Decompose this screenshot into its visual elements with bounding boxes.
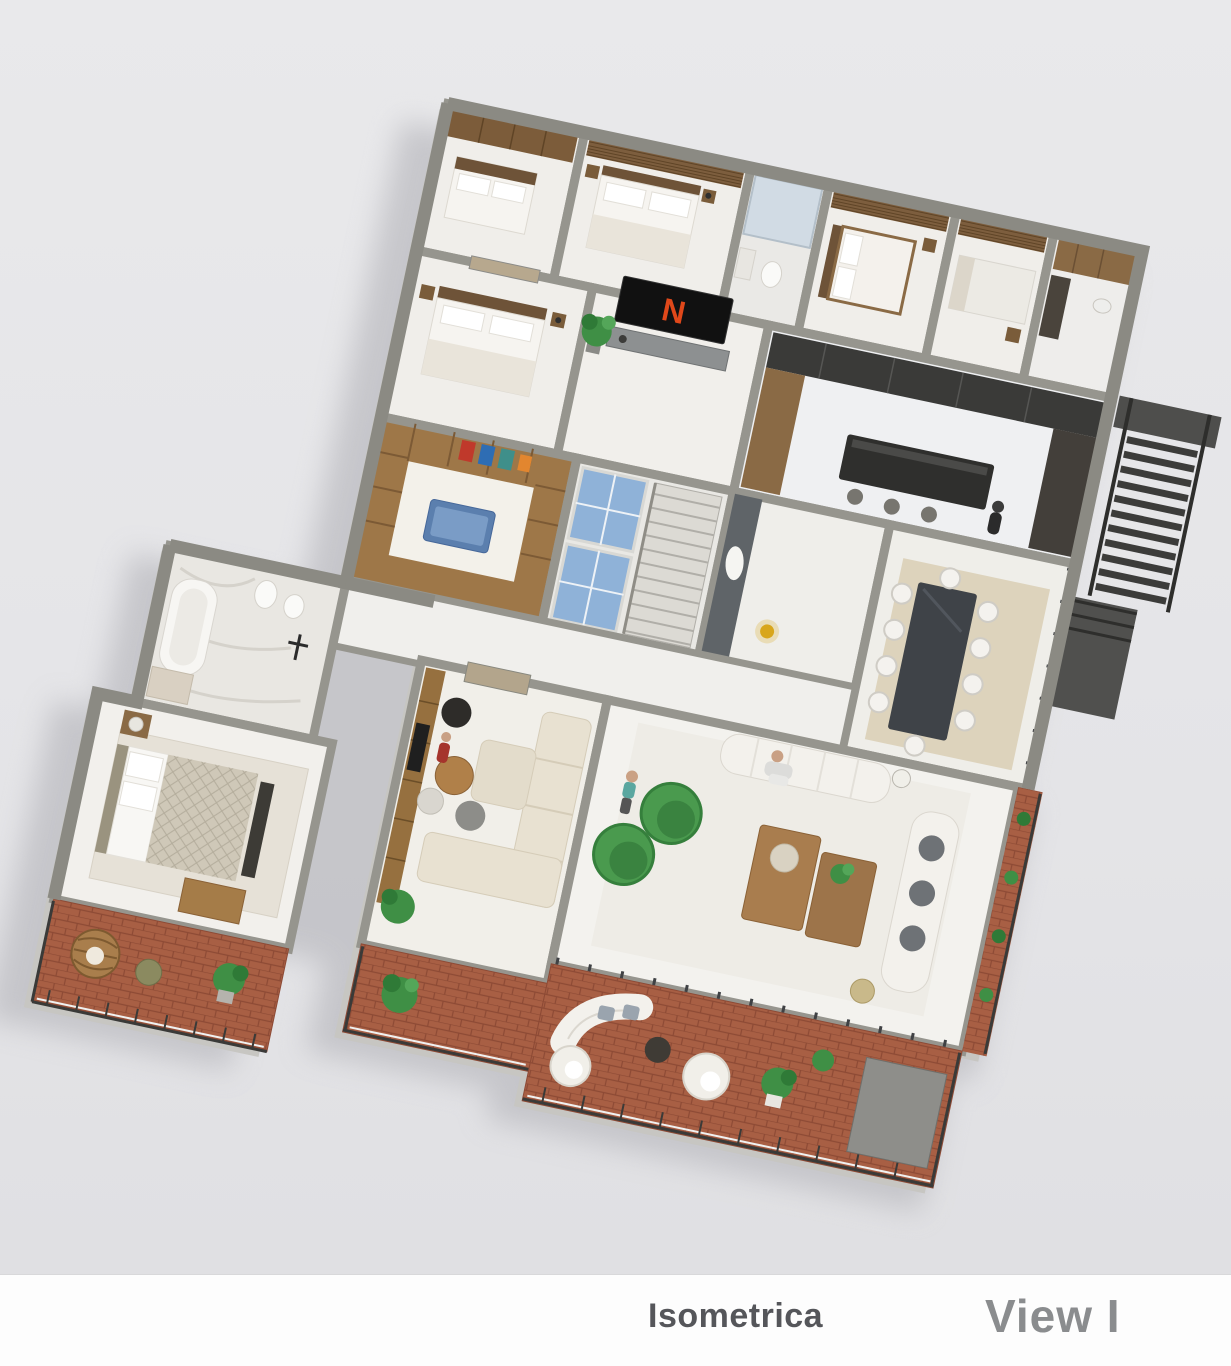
chaise (470, 739, 538, 811)
view-label: View I (985, 1289, 1121, 1343)
nightstand (1005, 327, 1022, 344)
plan-title: Isometrica (648, 1297, 823, 1336)
nightstand (922, 238, 937, 253)
rotated-plan: N (0, 49, 1231, 1244)
nightstand (585, 164, 600, 179)
nightstand (419, 284, 436, 301)
stair-treads (1095, 436, 1198, 605)
caption-bar: Isometrica View I (0, 1274, 1231, 1366)
floorplan-render: N (0, 0, 1231, 1275)
screenshot-root: N (0, 0, 1231, 1366)
